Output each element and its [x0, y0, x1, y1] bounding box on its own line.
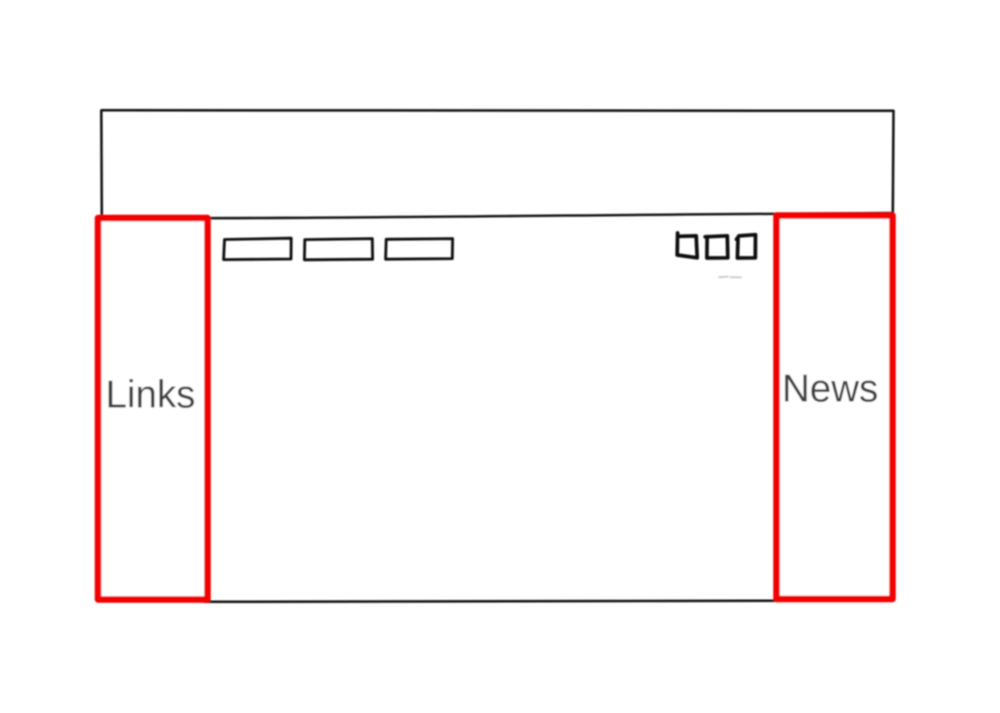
svg-text:Links: Links: [106, 374, 196, 417]
svg-text:News: News: [782, 368, 878, 411]
